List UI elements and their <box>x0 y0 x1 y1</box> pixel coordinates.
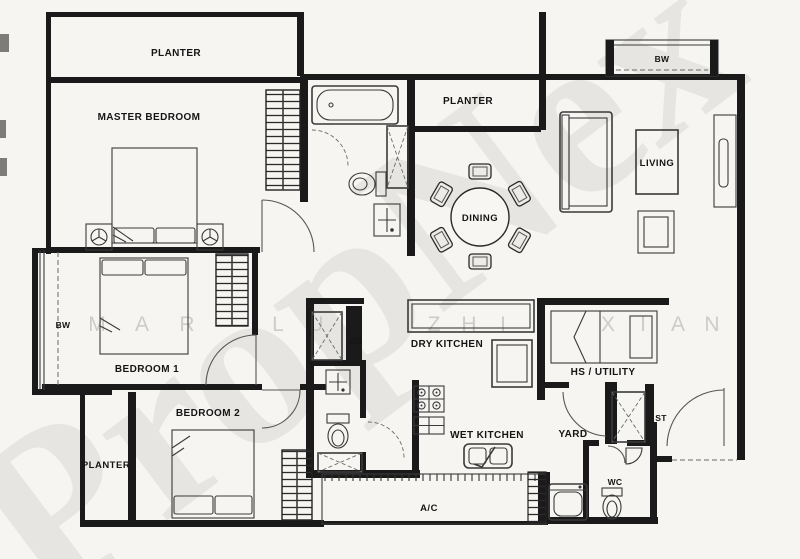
floor-plan-image: PropNex MARLUOZHIXIAN <box>0 0 800 559</box>
dining-chair <box>469 164 491 179</box>
hob <box>414 386 444 412</box>
scan-artifact <box>0 158 7 176</box>
label-hs-utility: HS / UTILITY <box>571 367 636 378</box>
label-bedroom2: BEDROOM 2 <box>176 408 240 419</box>
dining-chair <box>469 254 491 269</box>
label-st: ST <box>655 413 667 423</box>
scan-artifact <box>0 34 9 52</box>
wc-sink <box>626 448 642 464</box>
label-living: LIVING <box>640 158 675 169</box>
label-yard: YARD <box>558 429 587 440</box>
washing-machine <box>549 484 587 520</box>
wc-toilet <box>602 488 622 519</box>
watermark-letter: A <box>671 313 685 336</box>
label-ac: A/C <box>420 503 438 514</box>
label-dry-kitchen: DRY KITCHEN <box>411 339 483 350</box>
label-planter-mid: PLANTER <box>443 96 493 107</box>
master-bed <box>86 148 223 250</box>
label-bw-top: BW <box>655 54 670 64</box>
watermark-letter: R <box>179 313 194 336</box>
kitchen-sink <box>464 444 512 468</box>
label-bedroom1: BEDROOM 1 <box>115 364 179 375</box>
label-bw-left: BW <box>56 320 71 330</box>
ac-ledge <box>322 472 546 524</box>
floorplan-svg: PropNex MARLUOZHIXIAN <box>0 0 800 559</box>
bedroom2-wardrobe <box>282 450 312 520</box>
label-planter-top: PLANTER <box>151 48 201 59</box>
label-dining: DINING <box>462 213 498 224</box>
label-master-bedroom: MASTER BEDROOM <box>98 112 201 123</box>
scan-artifact <box>0 120 6 138</box>
master-wardrobe <box>266 90 300 190</box>
wc-door-arc <box>608 446 625 463</box>
label-wc: WC <box>608 477 623 487</box>
label-planter-bottom: PLANTER <box>82 460 130 471</box>
watermark-letter: M <box>88 313 106 336</box>
watermark-letter: L <box>272 313 284 336</box>
label-db: DB <box>350 336 363 346</box>
entrance-door-arc <box>667 390 724 446</box>
fridge <box>492 340 532 387</box>
watermark-letter: N <box>704 313 719 336</box>
bedroom1-wardrobe <box>216 254 248 326</box>
watermark-letter: X <box>601 313 615 336</box>
watermark-letter: A <box>135 313 149 336</box>
label-wet-kitchen: WET KITCHEN <box>450 430 524 441</box>
